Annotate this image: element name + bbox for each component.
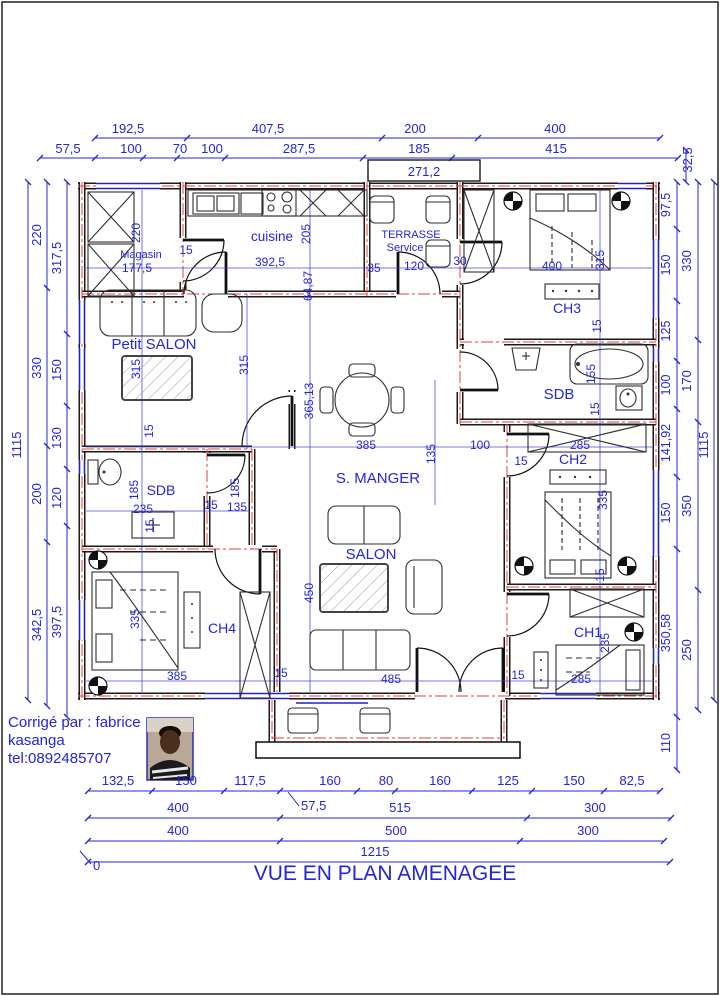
dim-label: 235 — [598, 633, 612, 653]
dim-label: 350 — [679, 495, 694, 517]
room-label-petit-salon: Petit SALON — [111, 336, 196, 353]
dim-label: 15 — [179, 243, 193, 257]
dim-label: 57,5 — [301, 798, 326, 813]
floor-plan: Magasin cuisine TERRASSE Service CH3 SDB… — [78, 182, 660, 758]
dim-label: 235 — [133, 502, 153, 516]
dim-label: 70 — [173, 141, 187, 156]
dining-set — [320, 364, 404, 436]
dim-label: 185 — [127, 480, 141, 500]
dim-label: 271,2 — [408, 164, 441, 179]
dim-label: 330 — [29, 357, 44, 379]
dim-label: 15 — [274, 666, 288, 680]
dim-label: 385 — [356, 438, 376, 452]
credit-block: Corrigé par : fabrice kasanga tel:089248… — [8, 714, 193, 780]
dim-label: 185 — [408, 141, 430, 156]
dim-label-zero: 0 — [93, 858, 100, 873]
dim-label: 400 — [167, 800, 189, 815]
dim-label: 407,5 — [252, 121, 285, 136]
dim-label: 141,92 — [659, 424, 673, 462]
room-label-ch3: CH3 — [553, 300, 581, 316]
room-label-s-manger: S. MANGER — [336, 470, 420, 487]
dim-chain-top: 192,5 407,5 200 400 57,5 100 70 100 287,… — [40, 121, 695, 182]
dim-label: 450 — [302, 583, 316, 603]
credit-line-2: kasanga — [8, 732, 65, 749]
dim-label: 200 — [29, 483, 44, 505]
dim-label: 335 — [128, 609, 142, 629]
dim-label: 300 — [577, 823, 599, 838]
dim-chain-right: 97,5 150 125 100 141,92 150 350,58 110 3… — [659, 182, 714, 770]
dim-label: 220 — [29, 224, 44, 246]
dim-label: 415 — [545, 141, 567, 156]
dim-label: 515 — [389, 800, 411, 815]
dim-label: 100 — [470, 438, 490, 452]
room-label-terrasse: TERRASSE — [381, 229, 440, 241]
dresser-ch4 — [184, 592, 200, 648]
salon-furniture — [310, 506, 442, 670]
dining-table — [335, 373, 389, 427]
dim-label: 250 — [679, 639, 694, 661]
dim-label: 15 — [590, 319, 604, 333]
room-label-service: Service — [387, 242, 424, 254]
dim-label: 342,5 — [29, 609, 44, 642]
dim-label: 220 — [129, 223, 143, 243]
dim-label: 64,87 — [301, 271, 315, 301]
dim-label: 100 — [201, 141, 223, 156]
armchair-salon — [406, 560, 442, 614]
pouf — [202, 294, 242, 332]
dim-label: 205 — [299, 224, 313, 244]
dim-label: 350,58 — [659, 614, 673, 652]
credit-line-1: Corrigé par : fabrice — [8, 714, 141, 731]
author-photo — [147, 718, 193, 780]
dim-label: 82,5 — [619, 773, 644, 788]
toilet-tank-left — [88, 460, 98, 484]
bathtub — [570, 344, 648, 384]
dim-label: 177,5 — [122, 261, 152, 275]
shelves-magasin — [88, 192, 134, 296]
dim-label: 155 — [584, 364, 598, 384]
dim-label: 30 — [453, 254, 467, 268]
dim-label: 315 — [129, 359, 143, 379]
dim-label: 160 — [319, 773, 341, 788]
dim-label: 160 — [429, 773, 451, 788]
dim-label: 300 — [584, 800, 606, 815]
dim-label: 125 — [497, 773, 519, 788]
dim-label: 130 — [49, 427, 64, 449]
room-label-ch2: CH2 — [559, 451, 587, 467]
dim-label: 385 — [167, 669, 187, 683]
dim-label: 400 — [542, 259, 562, 273]
dim-label: 80 — [379, 773, 393, 788]
porch — [256, 700, 520, 758]
dim-label: 100 — [120, 141, 142, 156]
credit-line-3: tel:0892485707 — [8, 750, 111, 767]
dim-label: 287,5 — [283, 141, 316, 156]
dim-label: 117,5 — [234, 773, 266, 788]
doors — [183, 240, 549, 692]
dim-label: 317,5 — [49, 242, 64, 275]
dim-label: 32,5 — [680, 147, 695, 172]
dim-label: 97,5 — [659, 193, 673, 217]
dim-label: 1215 — [361, 844, 390, 859]
dim-label: 15 — [204, 498, 218, 512]
dim-label: 485 — [381, 672, 401, 686]
dim-label: 500 — [385, 823, 407, 838]
floor-plan-drawing: 192,5 407,5 200 400 57,5 100 70 100 287,… — [0, 0, 720, 996]
dim-label: 57,5 — [55, 141, 80, 156]
porch-chair — [288, 708, 318, 733]
dresser-ch2 — [550, 470, 606, 484]
room-label-cuisine: cuisine — [251, 229, 293, 244]
dim-label: 150 — [175, 773, 197, 788]
dim-label: 315 — [237, 355, 251, 375]
dim-label: 15 — [588, 402, 602, 416]
dim-label: 150 — [49, 359, 64, 381]
dim-label: 335 — [596, 490, 610, 510]
dim-label: 285 — [570, 438, 590, 452]
dim-label: 200 — [404, 121, 426, 136]
rug-salon — [320, 564, 388, 612]
dim-chain-bottom: 132,5 150 117,5 160 80 160 125 150 82,5 … — [80, 773, 671, 873]
bathroom-right — [512, 344, 648, 410]
kitchen-counter — [188, 190, 367, 216]
dim-label: 150 — [659, 503, 673, 524]
porch-chair — [360, 708, 390, 733]
dim-label: 365,13 — [302, 382, 316, 419]
dim-label: 315 — [593, 250, 607, 270]
dim-label: 1115 — [696, 432, 711, 459]
dim-label: 135 — [227, 500, 247, 514]
dim-label: 120 — [49, 487, 64, 509]
dim-label: 1115 — [9, 432, 24, 459]
room-label-magasin: Magasin — [120, 249, 162, 261]
dim-label: 170 — [679, 370, 694, 392]
room-label-ch4: CH4 — [208, 620, 236, 636]
dim-label: 392,5 — [255, 255, 285, 269]
dim-label: 15 — [514, 454, 528, 468]
dim-label: 135 — [424, 444, 438, 464]
room-label-salon: SALON — [346, 546, 397, 563]
dim-label: 397,5 — [49, 606, 64, 639]
dim-label: 125 — [659, 321, 673, 342]
floor-plan-page: 192,5 407,5 200 400 57,5 100 70 100 287,… — [0, 0, 720, 996]
dim-label: 400 — [167, 823, 189, 838]
dim-label: 192,5 — [112, 121, 145, 136]
dim-label: 15 — [142, 424, 156, 438]
sofa-salon-2 — [310, 630, 410, 670]
bedroom-ch3 — [464, 190, 630, 299]
dim-label: 15 — [143, 519, 157, 533]
dim-label: 15 — [593, 568, 607, 582]
dim-chain-left: 1115 220 330 200 342,5 317,5 150 130 120… — [9, 182, 67, 717]
dim-label: 150 — [659, 255, 673, 276]
drawing-title: VUE EN PLAN AMENAGEE — [254, 862, 517, 885]
dim-label: 120 — [404, 259, 424, 273]
dim-label: 100 — [659, 375, 673, 396]
dim-label: 330 — [679, 250, 694, 272]
dim-label: 285 — [571, 672, 591, 686]
dim-label: 110 — [659, 733, 673, 753]
room-label-sdb-left: SDB — [147, 482, 176, 498]
dim-label: 35 — [367, 261, 381, 275]
dim-label: 150 — [563, 773, 585, 788]
dim-label: 400 — [544, 121, 566, 136]
dim-label: 132,5 — [102, 773, 135, 788]
dim-label: 185 — [228, 478, 242, 498]
dim-label: 15 — [511, 668, 525, 682]
room-label-sdb-right: SDB — [544, 386, 575, 403]
